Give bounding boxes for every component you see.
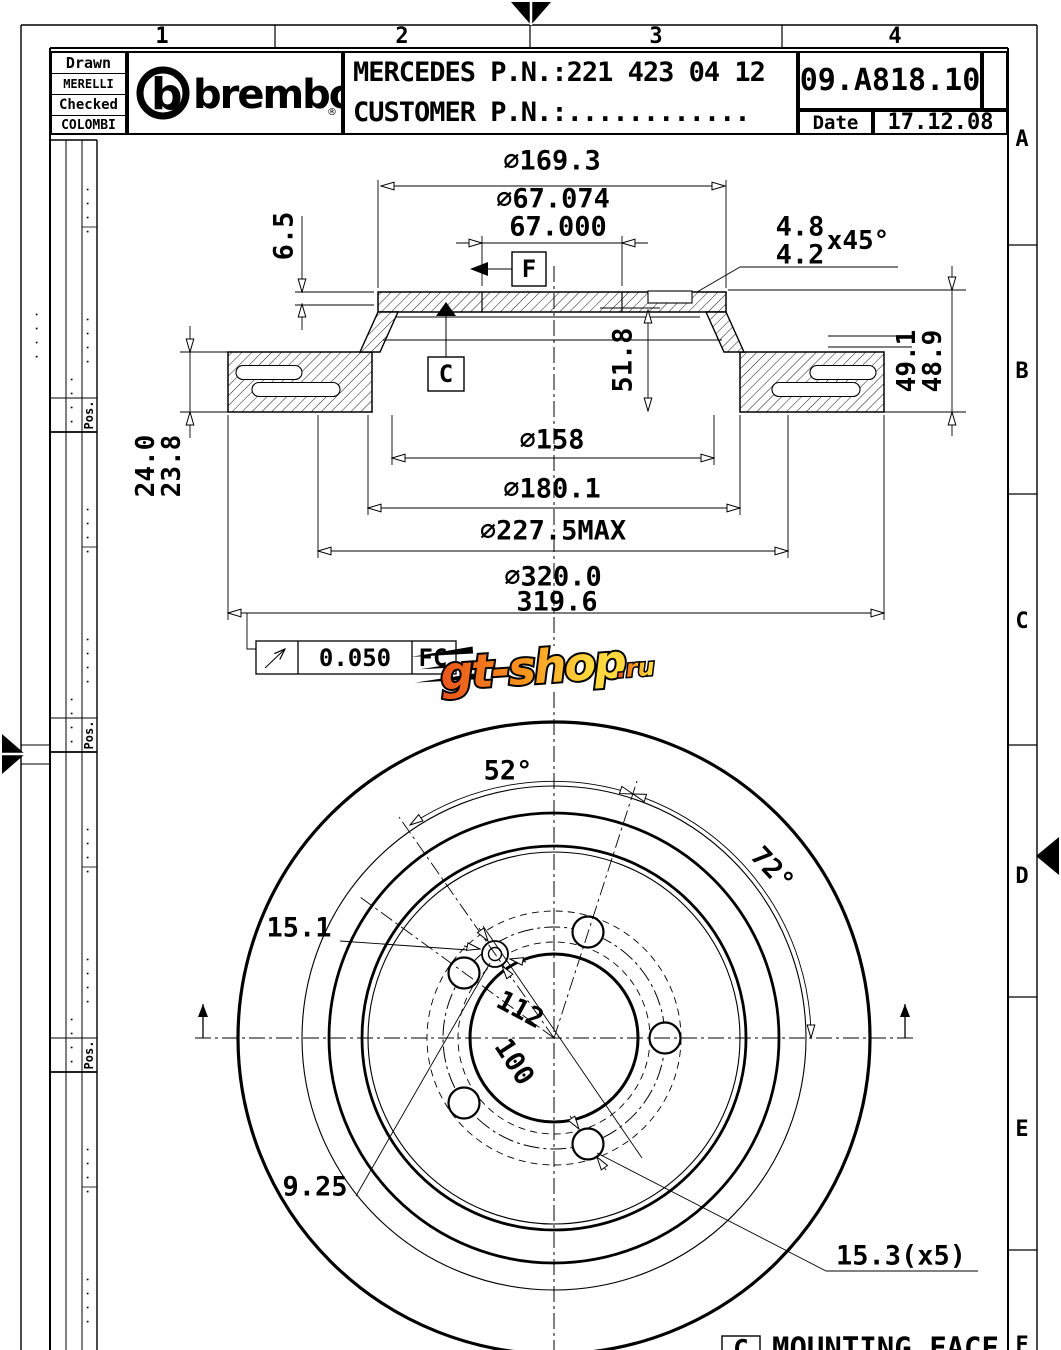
dim-disc-thickness-min: 23.8 <box>159 435 185 498</box>
revision-dots: · · · · <box>68 1015 78 1064</box>
section-view <box>228 291 912 412</box>
revision-dots: · · · · <box>84 1275 94 1324</box>
column-label-2: 2 <box>395 26 408 48</box>
revision-dots: · · · · <box>84 315 94 364</box>
pos-label: Pos. <box>83 721 95 750</box>
drawn-label: Drawn <box>52 53 125 74</box>
brembo-logo-cell: b brembo ® <box>127 51 343 135</box>
dim-pin-hole-diameter: 15.1 <box>266 915 331 942</box>
datum-f-label: F <box>522 257 536 281</box>
revision-dots: · · · · <box>68 375 78 424</box>
dim-diameter-180: ∅180.1 <box>503 476 601 503</box>
pos-label: Pos. <box>83 1041 95 1070</box>
revision-dots: · · · · <box>84 185 94 234</box>
mounting-face-note: MOUNTING FACE <box>772 1334 999 1350</box>
runout-value: 0.050 <box>319 646 391 670</box>
dim-chamfer-min: 4.2 <box>776 242 825 269</box>
dim-height-max: 49.1 <box>894 330 920 393</box>
dim-bolt-hole-diameter: 15.3(x5) <box>836 1243 966 1270</box>
pos-label: Pos. <box>83 401 95 430</box>
dim-diameter-158: ∅158 <box>519 427 584 454</box>
part-description-cell: MERCEDES P.N.:221 423 04 12 CUSTOMER P.N… <box>343 51 798 135</box>
dim-bore-max: ∅67.074 <box>496 186 610 213</box>
date-label-cell: Date <box>798 110 873 135</box>
column-label-4: 4 <box>888 26 901 48</box>
mercedes-part-number: MERCEDES P.N.:221 423 04 12 <box>345 53 796 93</box>
dim-pin-diameter: 9.25 <box>282 1174 347 1201</box>
brembo-logo: b brembo ® <box>129 53 341 133</box>
row-label-e: E <box>1015 1119 1028 1141</box>
dim-height-inner: 51.8 <box>610 327 637 392</box>
date-value: 17.12.08 <box>888 110 994 135</box>
dim-height-min: 48.9 <box>920 330 946 393</box>
row-label-d: D <box>1015 866 1028 888</box>
revision-cell <box>982 51 1008 110</box>
revision-dots: · · · · <box>84 635 94 684</box>
dim-flange-thickness: 6.5 <box>271 212 298 261</box>
checked-value: COLOMBI <box>52 116 125 137</box>
revision-dots: · · · · <box>84 1145 94 1194</box>
title-block-signatures: Drawn MERELLI ST. Checked COLOMBI <box>50 51 127 135</box>
revision-dots: · · · · <box>84 505 94 554</box>
datum-c-label: C <box>439 362 453 386</box>
row-label-a: A <box>1015 129 1028 151</box>
watermark-suffix: .ru <box>616 653 656 684</box>
watermark-text: gt-shop <box>439 634 628 701</box>
mounting-datum-label: C <box>733 1337 749 1350</box>
revision-dots: · · · · <box>68 695 78 744</box>
checked-label: Checked <box>52 95 125 116</box>
drawing-number: 09.A818.10 <box>800 63 981 98</box>
brembo-wordmark: brembo <box>193 72 341 118</box>
row-label-b: B <box>1015 361 1028 383</box>
registered-mark: ® <box>327 107 337 118</box>
dim-angle-pin: 52° <box>484 758 533 785</box>
dim-disc-thickness-max: 24.0 <box>133 435 159 498</box>
drawn-value: MERELLI ST. <box>52 74 125 95</box>
dim-chamfer-angle: x45° <box>827 228 890 254</box>
revision-dots: · · · · <box>84 825 94 874</box>
customer-part-number: CUSTOMER P.N.:............ <box>345 93 796 133</box>
column-label-1: 1 <box>155 26 168 48</box>
dim-outer-diameter-min: 319.6 <box>516 589 597 616</box>
dim-bore-min: 67.000 <box>509 214 607 241</box>
revision-dots: · · · · <box>33 310 43 359</box>
brembo-logo-b: b <box>151 69 183 120</box>
dim-flange-diameter: ∅169.3 <box>503 148 601 175</box>
date-value-cell: 17.12.08 <box>873 110 1008 135</box>
row-label-c: C <box>1015 611 1028 633</box>
dim-diameter-227: ∅227.5MAX <box>480 518 626 545</box>
drawing-sheet: 1 2 3 4 A B C D E F Pos. Pos. Pos. · · ·… <box>0 0 1061 1350</box>
date-label: Date <box>813 112 859 134</box>
row-label-f: F <box>1015 1335 1028 1350</box>
dim-chamfer-max: 4.8 <box>776 214 825 241</box>
drawing-number-cell: 09.A818.10 <box>798 51 982 110</box>
revision-dots: · · · · <box>84 955 94 1004</box>
column-label-3: 3 <box>649 26 662 48</box>
